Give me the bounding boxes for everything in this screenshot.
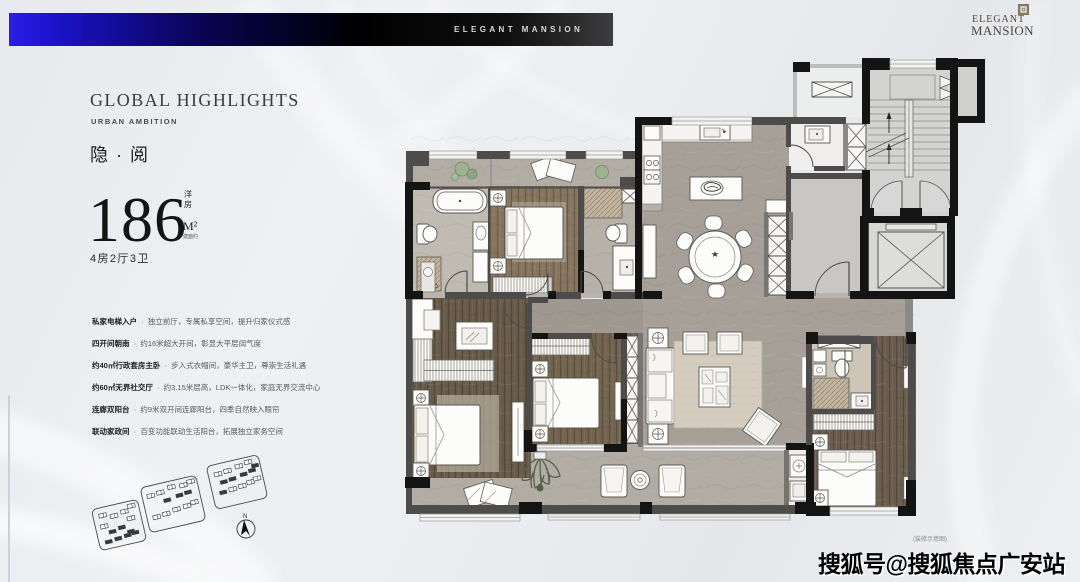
svg-text:N: N [243, 514, 247, 520]
